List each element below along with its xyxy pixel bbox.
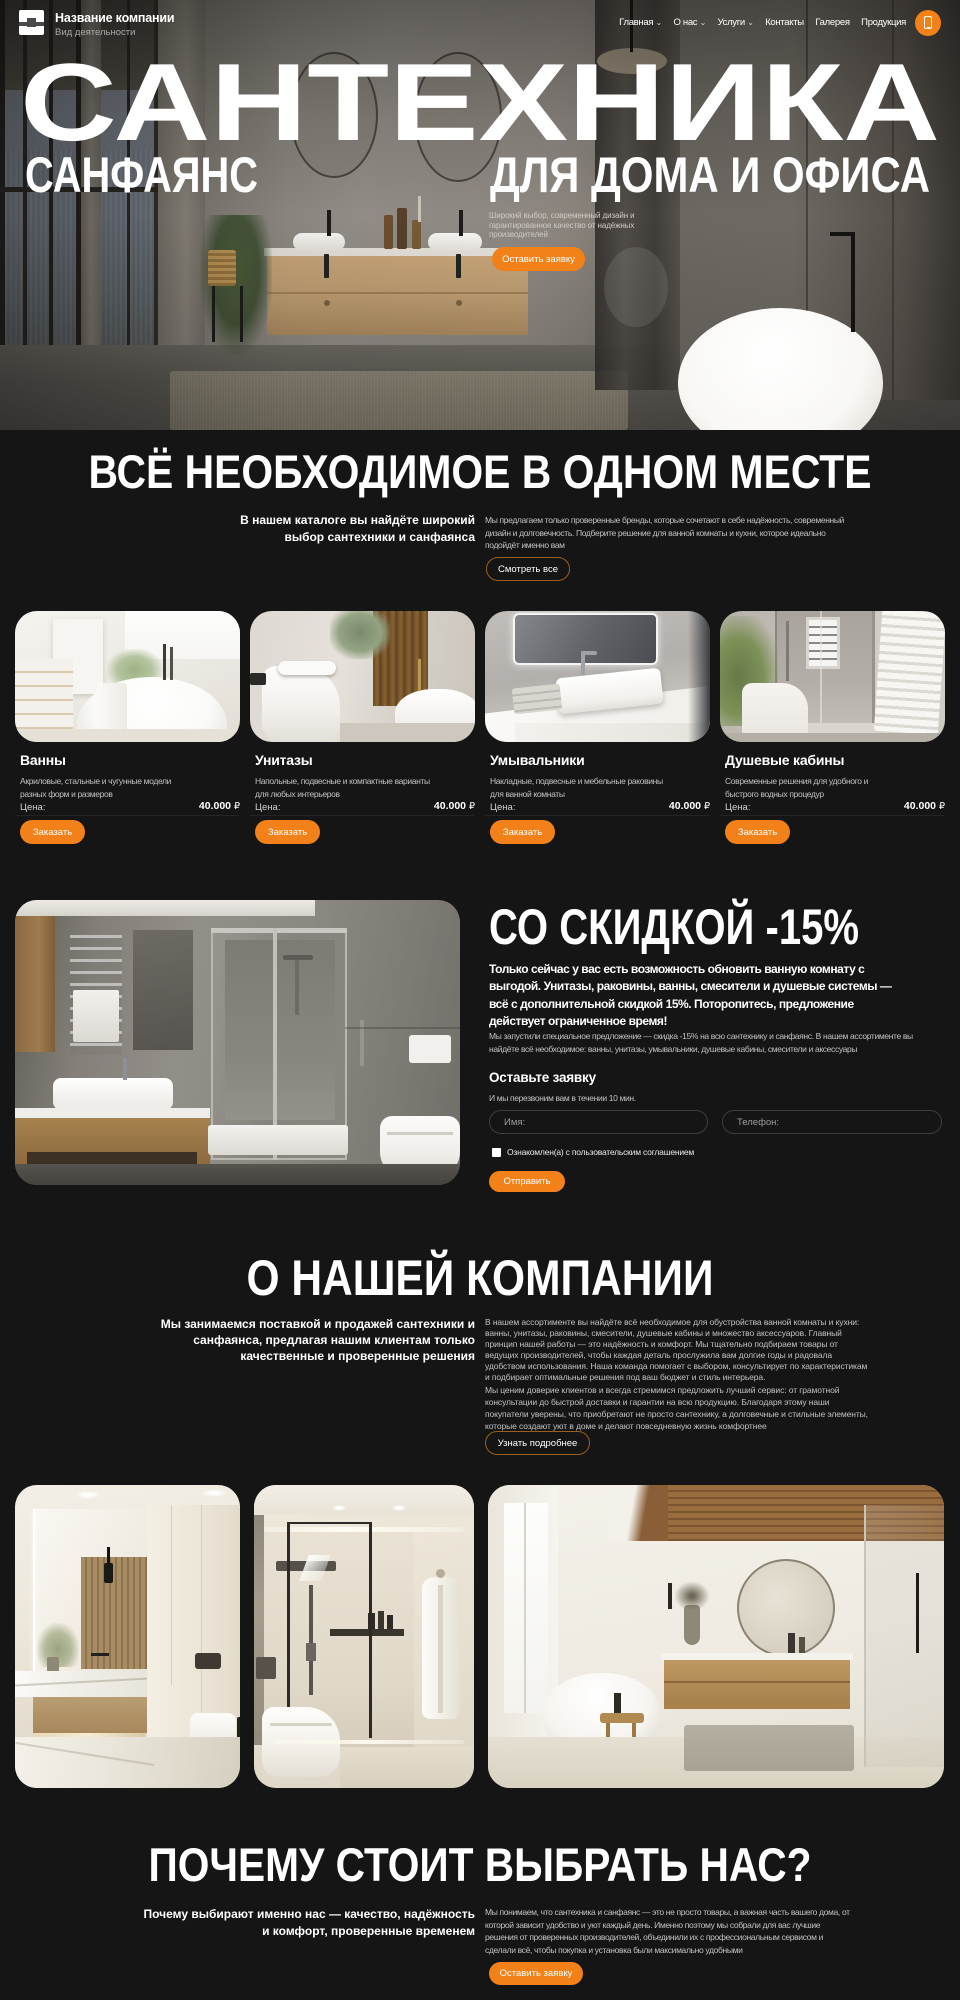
svg-text:О НАШЕЙ КОМПАНИИ: О НАШЕЙ КОМПАНИИ — [247, 1249, 714, 1306]
svg-text:СО СКИДКОЙ -15%: СО СКИДКОЙ -15% — [489, 898, 859, 955]
svg-text:ВСЁ НЕОБХОДИМОЕ В ОДНОМ МЕСТЕ: ВСЁ НЕОБХОДИМОЕ В ОДНОМ МЕСТЕ — [89, 445, 872, 498]
svg-text:ПОЧЕМУ СТОИТ ВЫБРАТЬ НАС?: ПОЧЕМУ СТОИТ ВЫБРАТЬ НАС? — [149, 1838, 812, 1891]
svg-text:САНФАЯНС: САНФАЯНС — [25, 147, 258, 203]
svg-text:ДЛЯ ДОМА И ОФИСА: ДЛЯ ДОМА И ОФИСА — [490, 147, 930, 203]
